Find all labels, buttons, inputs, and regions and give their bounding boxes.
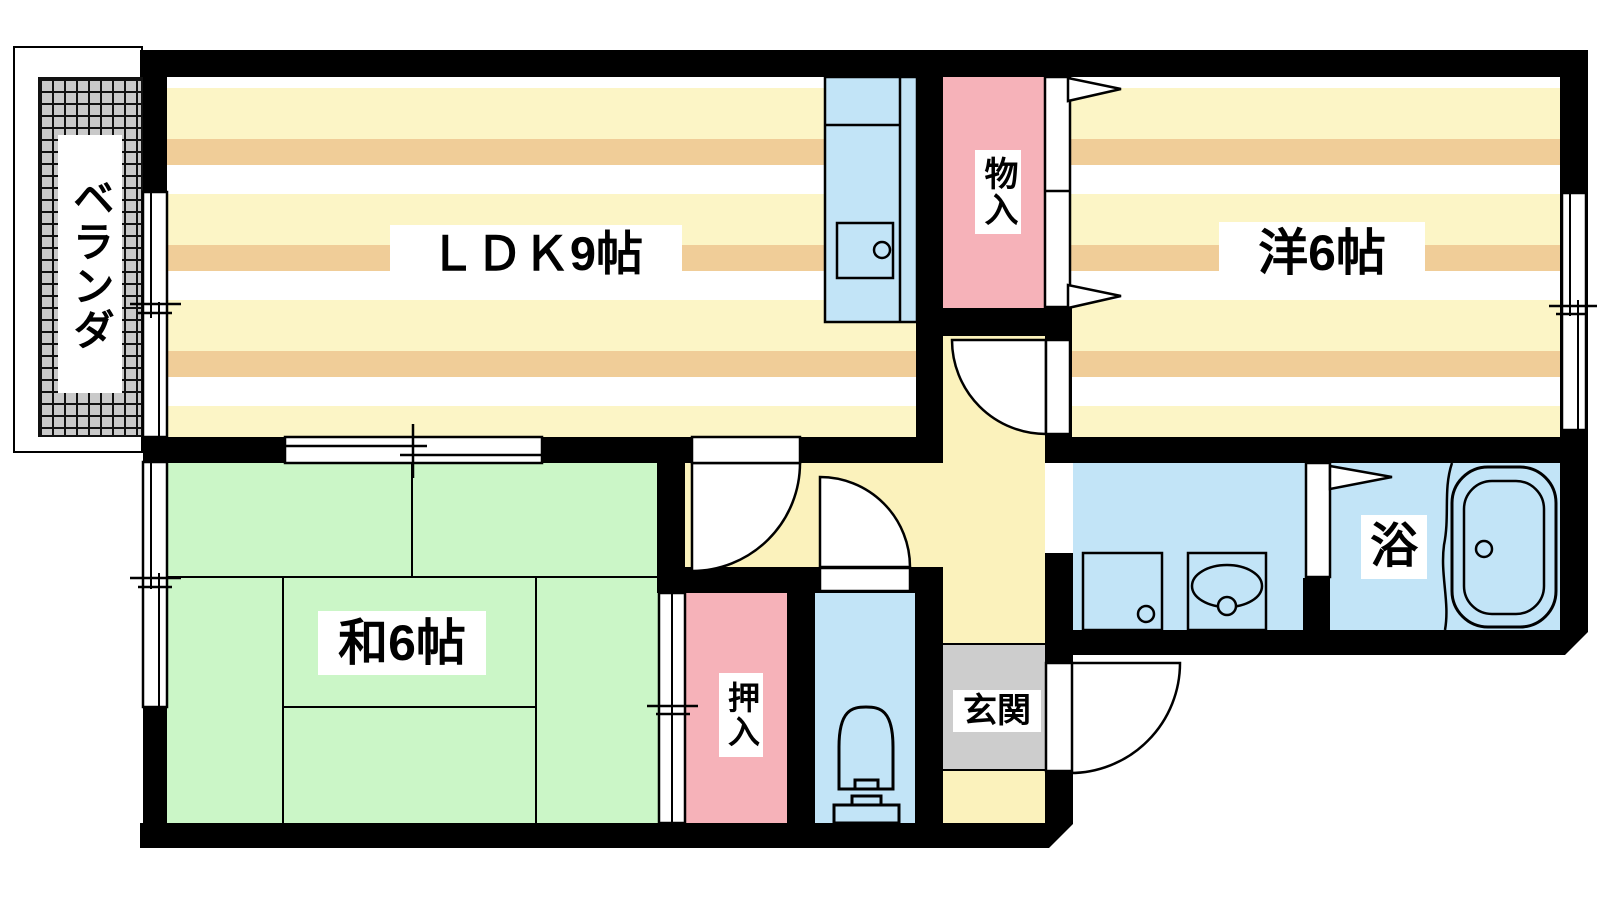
wall <box>657 567 915 593</box>
room-floor-toilet <box>815 593 915 823</box>
wall <box>167 437 917 463</box>
wall <box>943 308 1072 336</box>
room-label-storage: 物入 <box>975 150 1021 234</box>
wall <box>1073 630 1570 655</box>
wall <box>787 593 815 823</box>
wall <box>1303 578 1330 632</box>
room-label-entrance: 玄関 <box>953 690 1041 732</box>
wall <box>916 50 943 463</box>
wall <box>915 567 943 823</box>
wall <box>1045 553 1073 663</box>
wall <box>1560 50 1588 655</box>
hallway-floor <box>685 463 1045 567</box>
entrance-door-leaf <box>1046 663 1072 771</box>
wall <box>1045 771 1073 848</box>
wall <box>140 50 1588 77</box>
entrance-door-swing-icon <box>1070 663 1180 773</box>
room-floor-washroom <box>1072 463 1307 630</box>
wall <box>1070 437 1588 463</box>
room-label-japanese: 和6帖 <box>318 611 486 675</box>
room-label-bath: 浴 <box>1361 515 1427 579</box>
room-label-western: 洋6帖 <box>1219 222 1425 284</box>
washroom-doorway <box>1045 463 1073 553</box>
entrance-south-floor <box>943 771 1045 823</box>
wall <box>143 50 167 848</box>
floor-plan: ベランダ ＬＤＫ9帖 物入 洋6帖 和6帖 押入 玄関 浴 <box>0 0 1600 900</box>
bath-door-leaf <box>1306 463 1330 577</box>
room-label-ldk: ＬＤＫ9帖 <box>390 225 682 283</box>
storage-door-leaf <box>1045 77 1070 307</box>
wall <box>140 823 1073 848</box>
wall <box>657 463 685 567</box>
corridor-floor-upper <box>943 336 1045 463</box>
room-label-closet: 押入 <box>719 673 763 757</box>
wall <box>1045 333 1072 463</box>
corridor-floor-lower <box>943 567 1045 643</box>
room-label-veranda: ベランダ <box>58 135 122 393</box>
